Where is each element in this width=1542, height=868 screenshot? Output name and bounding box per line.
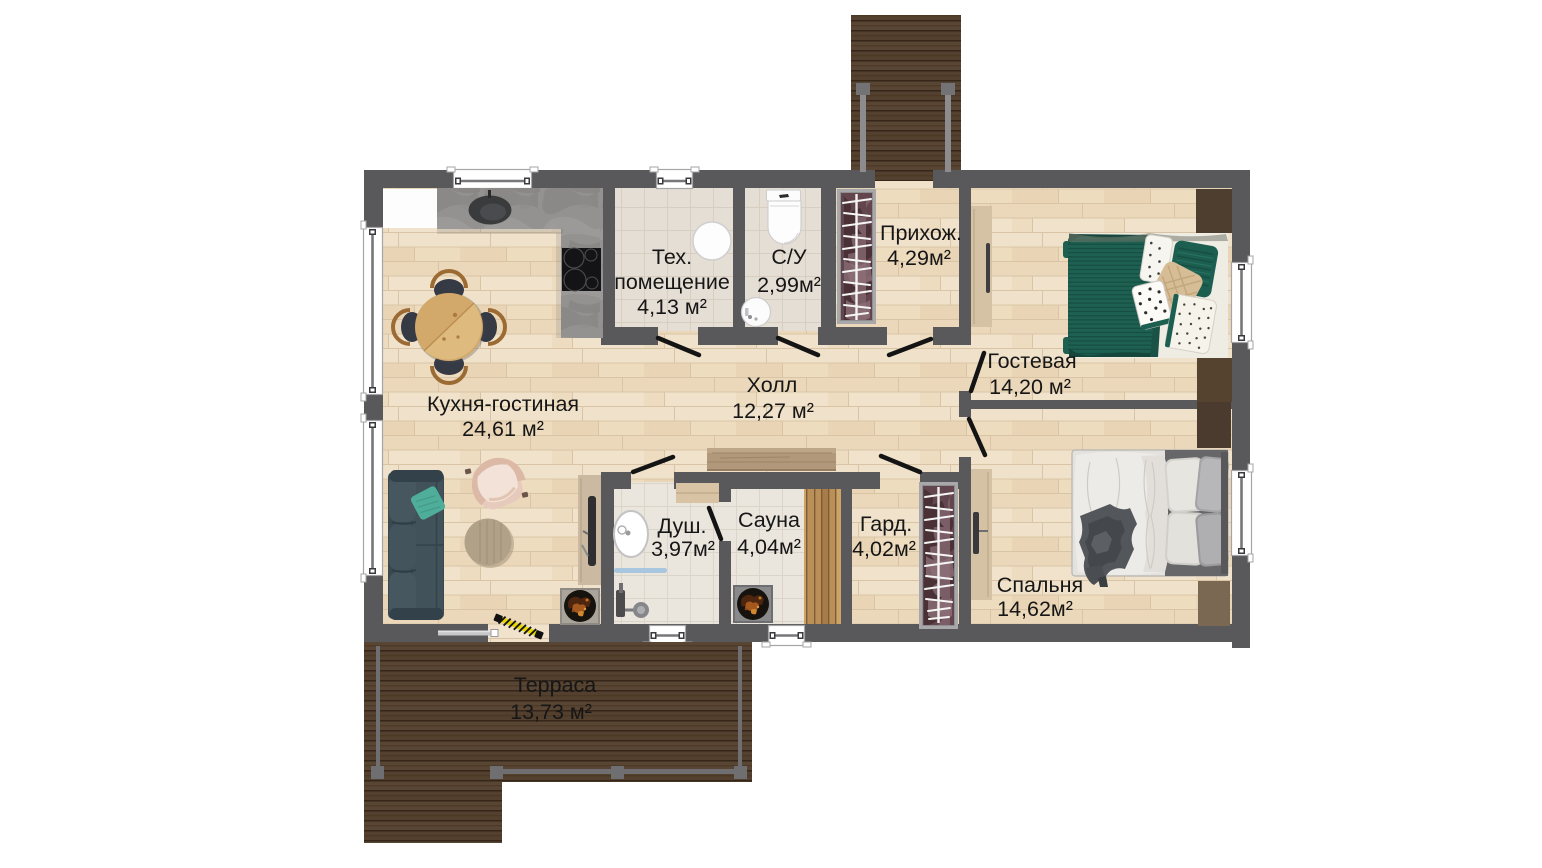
svg-text:Прихож.: Прихож. <box>880 221 962 245</box>
svg-text:Спальня: Спальня <box>997 573 1083 597</box>
svg-text:Сауна: Сауна <box>738 508 800 532</box>
svg-text:Гард.: Гард. <box>860 512 912 536</box>
svg-text:помещение: помещение <box>614 270 730 294</box>
svg-text:Гостевая: Гостевая <box>987 349 1076 373</box>
svg-text:Тех.: Тех. <box>652 245 692 269</box>
svg-text:13,73 м²: 13,73 м² <box>510 700 592 724</box>
svg-text:4,13 м²: 4,13 м² <box>637 295 707 319</box>
svg-text:Холл: Холл <box>747 373 798 397</box>
svg-text:Кухня-гостиная: Кухня-гостиная <box>427 392 579 416</box>
svg-text:12,27 м²: 12,27 м² <box>732 399 814 423</box>
svg-text:4,04м²: 4,04м² <box>737 535 801 559</box>
svg-text:Терраса: Терраса <box>514 673 597 697</box>
svg-text:14,62м²: 14,62м² <box>997 597 1073 621</box>
svg-text:14,20 м²: 14,20 м² <box>989 375 1071 399</box>
svg-text:3,97м²: 3,97м² <box>651 537 715 561</box>
svg-text:2,99м²: 2,99м² <box>757 273 821 297</box>
svg-text:4,02м²: 4,02м² <box>852 537 916 561</box>
svg-text:4,29м²: 4,29м² <box>887 246 951 270</box>
svg-text:Душ.: Душ. <box>657 514 706 538</box>
svg-text:24,61 м²: 24,61 м² <box>462 417 544 441</box>
svg-text:С/У: С/У <box>771 245 807 269</box>
